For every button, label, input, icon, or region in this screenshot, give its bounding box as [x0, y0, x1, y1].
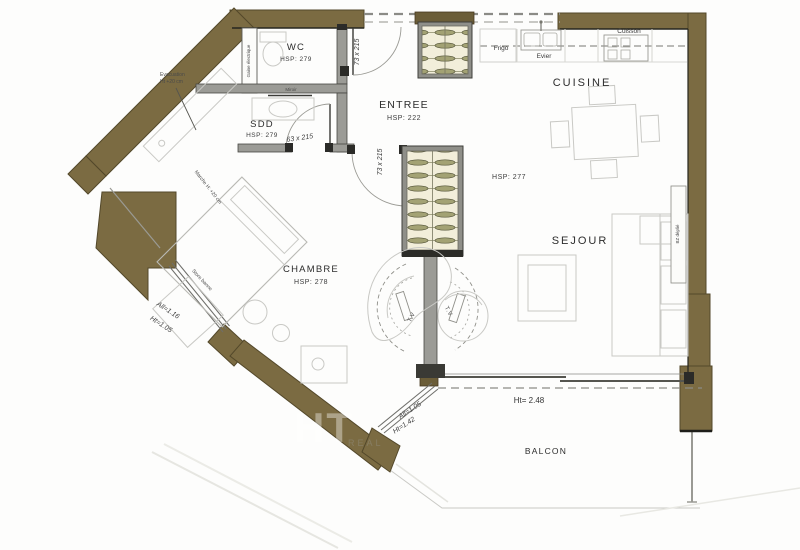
- chaise-longue: [368, 248, 452, 341]
- wall-right-lower: [688, 294, 710, 374]
- pouf-small: [273, 325, 290, 342]
- chambre-door-dim: 73 x 215: [377, 148, 384, 175]
- labels: WC HSP: 279 SDD HSP: 279 ENTREE HSP: 222…: [149, 38, 612, 456]
- right-wall-inset: BZ déplié: [671, 186, 686, 283]
- bay-right-jamb: [684, 372, 694, 384]
- closet-entree: [415, 12, 474, 78]
- wall-tv: [424, 254, 437, 368]
- door-sdd: [285, 104, 333, 152]
- watermark-small: REAL: [348, 438, 384, 448]
- evac-label-1: Evacuation: [160, 72, 185, 78]
- balcony-outline: [152, 431, 800, 548]
- room-label-sdd: SDD: [250, 119, 274, 130]
- wall-wc-bottom: [196, 84, 347, 93]
- sofa-seat: [612, 214, 660, 356]
- window-sw-dim2: Ht=1.42: [392, 416, 417, 435]
- hsp-entree: HSP: 222: [387, 115, 421, 122]
- pouf-large: [243, 300, 267, 324]
- room-label-entree: ENTREE: [379, 99, 429, 111]
- bay-window: [438, 372, 702, 388]
- wall-sdd-right: [337, 93, 347, 152]
- wall-right: [688, 13, 706, 296]
- room-label-cuisine: CUISINE: [553, 77, 612, 89]
- evac-label-2: Ht +20 cm: [160, 79, 183, 85]
- hsp-cuisine: HSP: 277: [492, 174, 526, 181]
- window-nw-dim1: All=1.16: [154, 300, 180, 320]
- closet-dressing: [402, 146, 463, 257]
- wall-top-right: [558, 13, 706, 29]
- room-label-balcon: BALCON: [525, 446, 567, 456]
- cooktop: [604, 35, 648, 61]
- armchair: [438, 291, 488, 341]
- tv-label-right: T.V: [443, 306, 453, 318]
- floor-plan-page: T.V T.V Frigo Evier Cuisson: [0, 0, 800, 550]
- gaine-label: Gaine électrique: [246, 44, 251, 77]
- sink-label: Evier: [537, 53, 553, 60]
- hsp-sdd: HSP: 279: [246, 132, 278, 139]
- bed: [157, 177, 307, 327]
- room-label-sejour: SEJOUR: [552, 235, 609, 247]
- room-label-wc: WC: [287, 42, 305, 53]
- tv-set-right: [449, 293, 465, 322]
- bz-label: BZ déplié: [675, 224, 680, 244]
- bay-height: Ht= 2.48: [514, 396, 545, 405]
- entrance-door-dim: 73 x 215: [354, 38, 361, 65]
- floor-plan: T.V T.V Frigo Evier Cuisson: [0, 0, 800, 550]
- fridge-label: Frigo: [494, 45, 509, 52]
- hsp-chambre: HSP: 278: [294, 279, 328, 286]
- mirror-label: Miroir: [285, 87, 297, 92]
- sdd-door-dim: 63 x 215: [286, 133, 314, 144]
- watermark-big: HT: [294, 404, 354, 451]
- window-chambre-nw: [169, 260, 230, 332]
- cooktop-label: Cuisson: [617, 28, 641, 35]
- toilet-tank: [260, 32, 286, 42]
- room-label-chambre: CHAMBRE: [283, 264, 339, 275]
- hsp-wc: HSP: 279: [280, 56, 312, 63]
- marche-label: Marche H: +20 cm: [193, 169, 223, 205]
- wall-west-block: [96, 192, 176, 300]
- kitchen-table: [549, 83, 662, 181]
- watermark: HT REAL: [294, 404, 384, 451]
- wall-tv-cap: [416, 364, 445, 378]
- wall-sdd-bottom-left: [238, 144, 292, 152]
